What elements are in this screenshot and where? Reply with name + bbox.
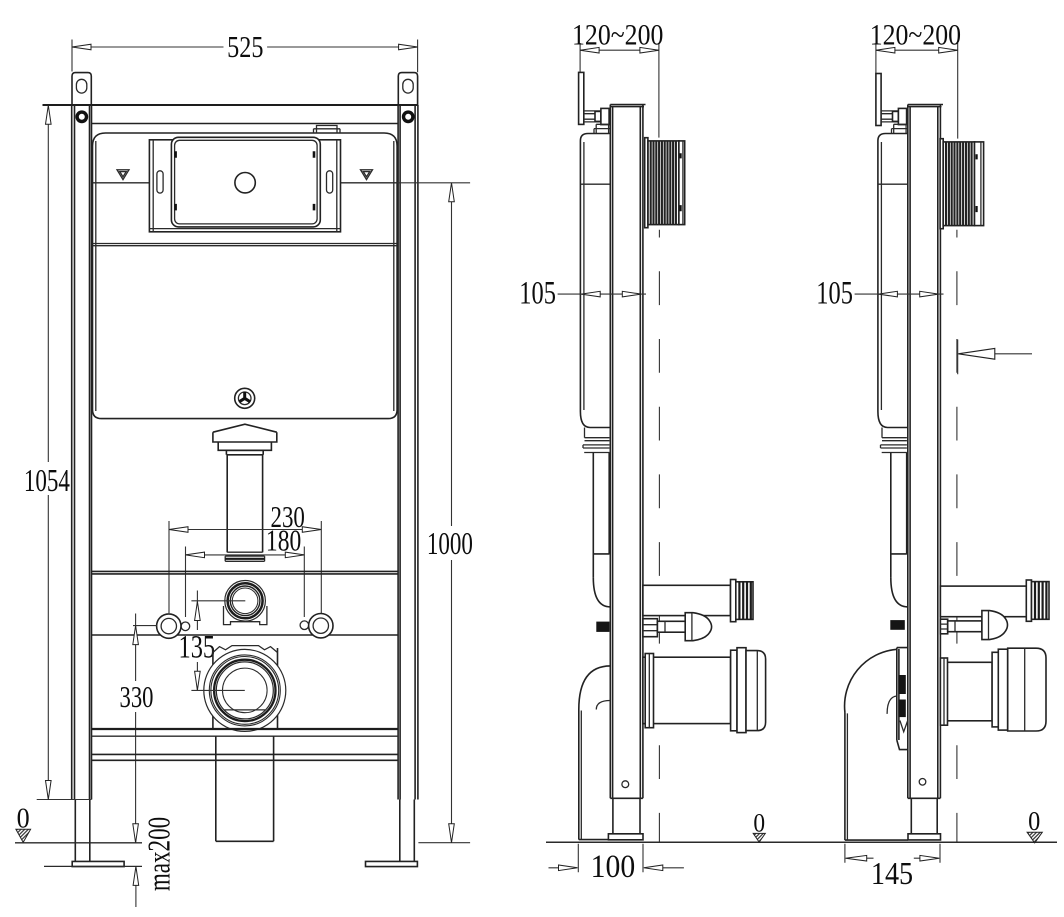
svg-text:105: 105 [519, 275, 556, 311]
svg-text:135: 135 [178, 629, 215, 665]
svg-text:180: 180 [266, 522, 301, 557]
svg-text:100: 100 [591, 848, 636, 885]
svg-text:525: 525 [227, 30, 263, 65]
svg-text:120~200: 120~200 [572, 19, 663, 52]
svg-text:120~200: 120~200 [870, 19, 961, 52]
svg-text:1054: 1054 [24, 463, 70, 499]
svg-text:max200: max200 [142, 817, 178, 891]
svg-text:145: 145 [871, 855, 913, 891]
svg-text:330: 330 [120, 680, 154, 714]
svg-text:1000: 1000 [427, 526, 473, 562]
svg-text:105: 105 [816, 275, 853, 311]
